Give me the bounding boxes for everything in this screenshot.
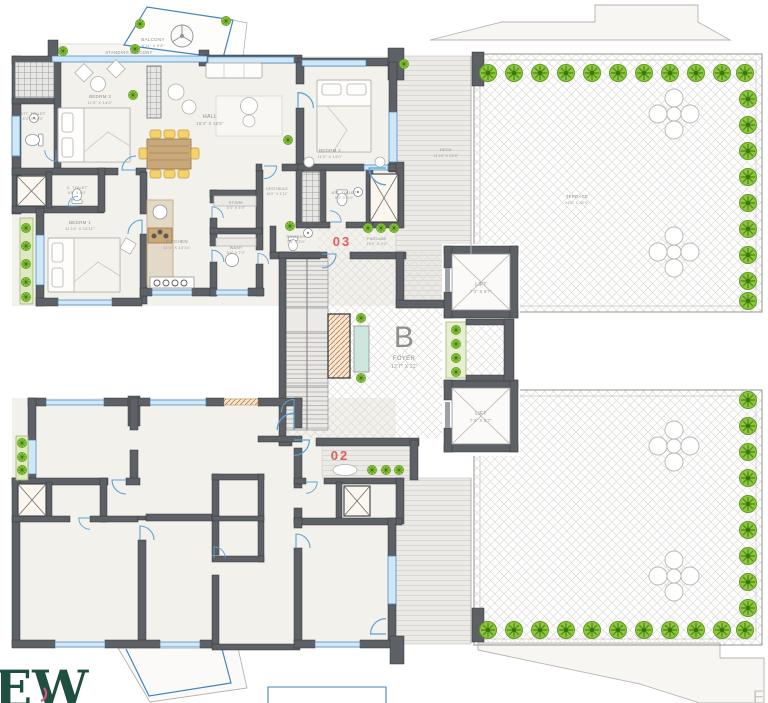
window-sill-hatch: [224, 399, 258, 405]
label-wash: WASH: [230, 246, 242, 250]
label-bedroom1: BEDRM 1: [69, 220, 91, 225]
label-att-toilet3: ATT. TOILET: [20, 112, 45, 116]
floor-plan-svg: STANDING BALCONY BALCONY 8'11" X 9'8" BE…: [0, 0, 768, 703]
label-standing-balcony: STANDING BALCONY: [105, 50, 152, 55]
label-lift-upper: LIFT: [475, 282, 486, 288]
svg-text:12'7" X 22': 12'7" X 22': [391, 364, 417, 370]
label-deck: DECK: [440, 147, 452, 152]
label-terrace: TERRACE: [566, 194, 588, 199]
label-hall: HALL: [203, 114, 217, 120]
tv-unit: [147, 66, 161, 118]
label-kitchen: KITCHEN: [166, 239, 188, 244]
svg-text:11'10" X 13'11": 11'10" X 13'11": [65, 226, 95, 231]
svg-text:5'3" X 4'0": 5'3" X 4'0": [227, 206, 246, 210]
svg-text:34'6" X 40'0": 34'6" X 40'0": [565, 201, 590, 205]
watermark-logo: EW: [0, 659, 89, 703]
label-vestibule: VESTIBULE: [266, 187, 288, 191]
lift-lobby-floor: [466, 325, 506, 375]
svg-text:5'4" X 14'0": 5'4" X 14'0": [23, 117, 44, 121]
label-bedroom2: BEDRM 2: [319, 148, 341, 153]
svg-text:7'6" X 5'0": 7'6" X 5'0": [287, 240, 306, 244]
svg-text:11'10" X 23'8": 11'10" X 23'8": [434, 154, 459, 158]
floor-plan-image: STANDING BALCONY BALCONY 8'11" X 9'8" BE…: [0, 0, 768, 703]
svg-text:7'4" X 6'7": 7'4" X 6'7": [470, 289, 492, 294]
label-bedroom3: BEDRM 3: [89, 94, 111, 99]
service-shaft: [328, 314, 350, 378]
label-powder: POWDER: [287, 235, 306, 239]
svg-text:10'6" X 5'0": 10'6" X 5'0": [367, 242, 388, 246]
wardrobe-bedroom2: [302, 172, 320, 222]
unit-number-02: 02: [331, 448, 349, 463]
svg-text:5'5" X 4'0": 5'5" X 4'0": [68, 191, 87, 195]
label-lift-lower: LIFT: [475, 411, 486, 417]
ceiling-fan-icon: [171, 25, 193, 47]
svg-text:8'11" X 9'8": 8'11" X 9'8": [142, 43, 165, 48]
glass-panel: [354, 326, 369, 372]
label-block-letter: B: [394, 321, 414, 354]
label-passage: PASSAGE: [367, 237, 387, 241]
label-c-toilet: C. TOILET: [67, 186, 88, 190]
wardrobe-bedroom3: [15, 62, 54, 98]
svg-text:11'0" X 14'0": 11'0" X 14'0": [88, 100, 113, 105]
deck-lower: [396, 478, 471, 644]
watermark-corner-letter: F: [753, 687, 763, 703]
svg-text:16'0" X 4'11": 16'0" X 4'11": [266, 192, 288, 196]
svg-text:11'1" X 13'10": 11'1" X 13'10": [163, 245, 191, 250]
label-store: STORE: [229, 201, 244, 205]
unit-number-03: 03: [333, 234, 351, 249]
console-table: [333, 465, 357, 476]
label-att-toilet2: ATT. TOILET: [331, 191, 356, 195]
svg-text:16'4" X 15'5": 16'4" X 15'5": [196, 121, 224, 126]
label-foyer: FOYER: [393, 356, 416, 362]
svg-text:9'0" X 5'0": 9'0" X 5'0": [335, 196, 354, 200]
svg-text:7'4" X 6'7": 7'4" X 6'7": [470, 418, 492, 423]
svg-text:5'4" X 7'0": 5'4" X 7'0": [227, 251, 246, 255]
label-balcony: BALCONY: [141, 37, 165, 42]
svg-text:11'0" X 14'0": 11'0" X 14'0": [318, 154, 343, 159]
